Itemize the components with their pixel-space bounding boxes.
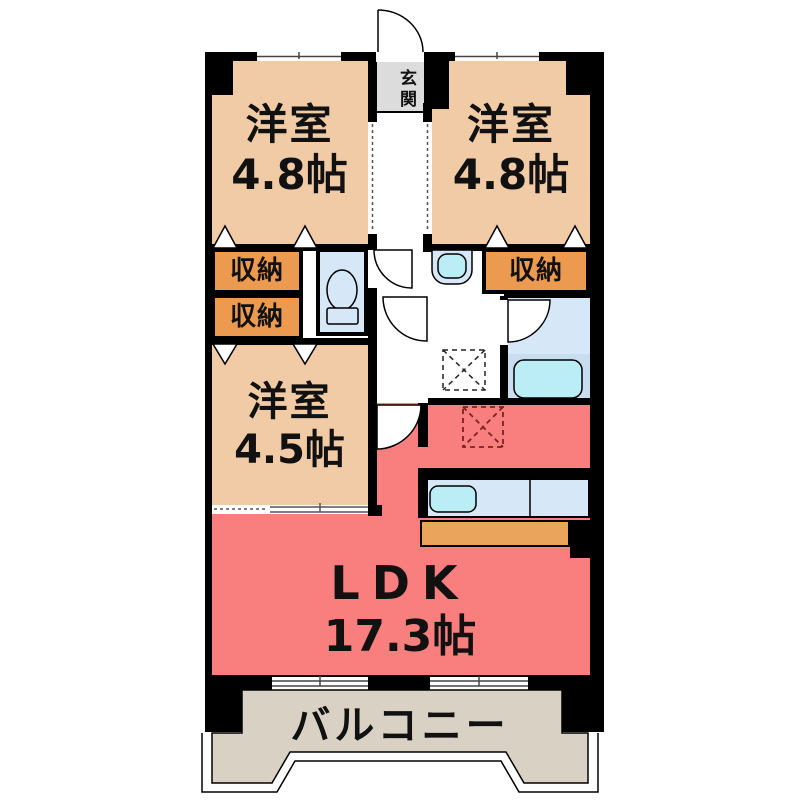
sink-icon: [432, 250, 472, 284]
window-bottom-right: [430, 677, 528, 690]
window-bottom-left: [272, 677, 368, 690]
room-name: 洋室: [432, 100, 590, 150]
window-top-left: [257, 52, 341, 61]
wall-washbath-bottom: [428, 398, 604, 405]
wall-hall-mid: [368, 288, 377, 505]
wall-closets-top: [211, 244, 377, 251]
wall-bedroom-ne-bottom: [448, 244, 590, 251]
room-area: 4.5帖: [211, 426, 368, 474]
sliding-band-bedroom-w: [212, 505, 368, 514]
wall-corner-tr: [566, 52, 604, 95]
window-top-right: [455, 52, 539, 61]
wall-hall-stub: [418, 403, 428, 447]
bedroom-nw-label: 洋室 4.8帖: [211, 100, 368, 201]
wall-bath-top: [504, 292, 604, 298]
closet-left-1-label: 収納: [211, 252, 303, 290]
wall-right: [590, 52, 604, 690]
sliding-door-hall-left: [368, 122, 377, 234]
wall-bottom: [205, 675, 604, 690]
toilet-doorway: [368, 250, 377, 288]
entrance-label: 玄関: [390, 64, 414, 116]
wall-kitchen-notch: [570, 520, 604, 558]
kitchen-lower-counter: [420, 520, 570, 547]
sliding-door-hall-right: [423, 122, 432, 234]
entrance-opening: [376, 52, 424, 62]
washer-space-icon: [443, 350, 485, 390]
room-name: LDK: [255, 556, 545, 611]
room-name: 洋室: [211, 100, 368, 150]
room-bath-upper: [508, 296, 590, 354]
ldk-label: LDK 17.3帖: [255, 556, 545, 664]
closet-left-2-label: 収納: [211, 298, 303, 336]
kitchen-counter: [426, 478, 590, 518]
entrance-door-icon: [378, 10, 423, 52]
balcony-label: バルコニー: [240, 702, 560, 750]
wall-balcony-block-right: [562, 690, 604, 732]
toilet-door-icon: [374, 250, 412, 288]
room-area: 4.8帖: [211, 150, 368, 200]
bath-doorway: [500, 300, 508, 345]
room-area: 4.8帖: [432, 150, 590, 200]
room-name: 洋室: [211, 378, 368, 426]
room-toilet: [316, 248, 368, 336]
wall-kitchen-top: [418, 468, 590, 478]
floorplan: 玄関 洋室 4.8帖 洋室 4.8帖 収納 収納 収納 洋室 4.5帖 LDK …: [0, 0, 800, 800]
closet-right-label: 収納: [482, 252, 590, 290]
washroom-door-icon: [383, 297, 427, 341]
wall-balcony-block-left: [205, 690, 242, 732]
wall-corner-band: [368, 505, 382, 516]
wall-closets-bottom: [211, 338, 377, 345]
bedroom-ne-label: 洋室 4.8帖: [432, 100, 590, 201]
bedroom-w-label: 洋室 4.5帖: [211, 378, 368, 474]
wall-corner-tl: [205, 52, 233, 95]
room-area: 17.3帖: [255, 611, 545, 664]
room-bath-lower: [508, 354, 590, 404]
wall-kitchen-cap: [418, 478, 426, 518]
